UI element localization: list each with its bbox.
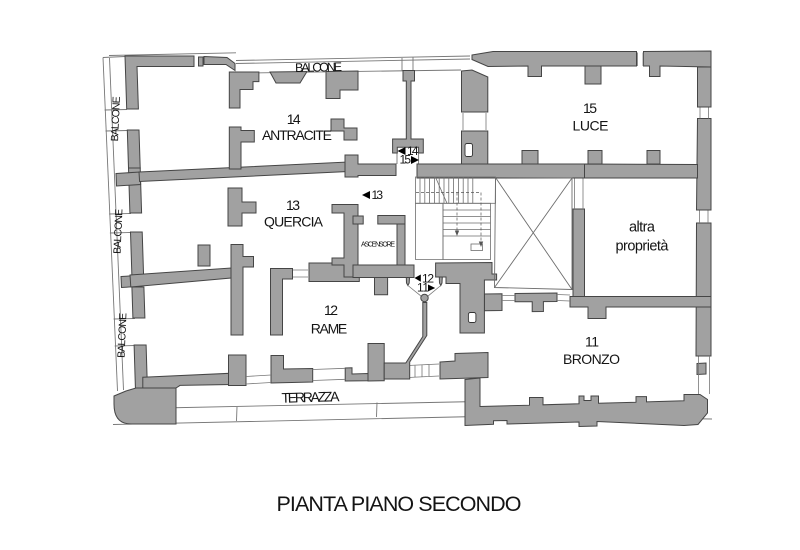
svg-text:13: 13 [372,188,384,202]
svg-text:14: 14 [287,111,301,127]
svg-text:ASCENSORE: ASCENSORE [361,242,395,249]
svg-text:12: 12 [324,302,338,318]
svg-text:BALCONE: BALCONE [112,209,126,254]
svg-text:ANTRACITE: ANTRACITE [262,127,332,143]
svg-text:BALCONE: BALCONE [116,313,130,358]
svg-text:TERRAZZA: TERRAZZA [281,388,340,406]
svg-text:LUCE: LUCE [573,118,609,134]
svg-text:BRONZO: BRONZO [563,351,620,367]
svg-text:RAME: RAME [311,321,348,337]
svg-text:altra: altra [629,220,656,236]
svg-text:QUERCIA: QUERCIA [264,214,324,230]
svg-text:BALCONE: BALCONE [295,60,342,75]
svg-text:BALCONE: BALCONE [109,96,123,141]
svg-text:15: 15 [583,100,597,116]
svg-text:PIANTA PIANO SECONDO: PIANTA PIANO SECONDO [277,492,522,516]
svg-text:proprietà: proprietà [616,239,670,255]
svg-text:11: 11 [417,281,429,295]
svg-text:13: 13 [286,197,300,213]
svg-text:11: 11 [585,334,599,350]
